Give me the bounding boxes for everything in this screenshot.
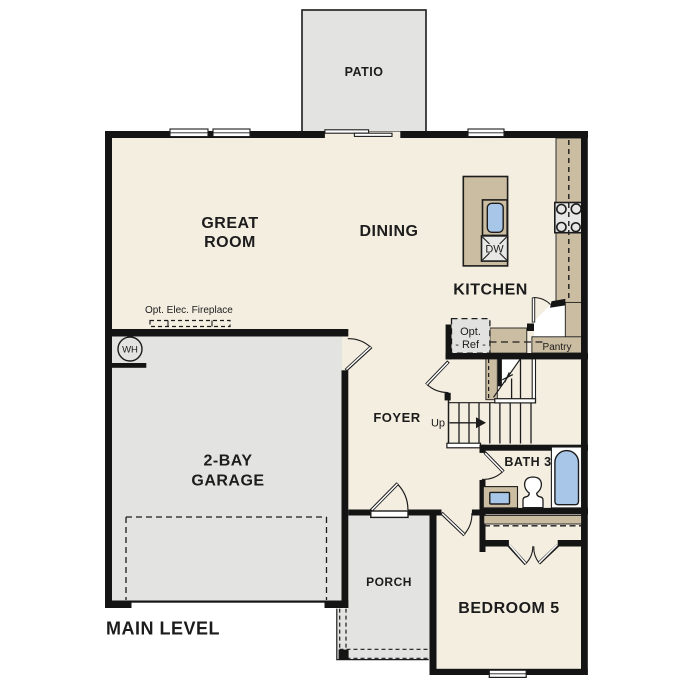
svg-text:Pantry: Pantry bbox=[543, 342, 572, 353]
svg-text:Opt. Elec. Fireplace: Opt. Elec. Fireplace bbox=[145, 305, 233, 316]
svg-text:BEDROOM 5: BEDROOM 5 bbox=[458, 600, 559, 617]
svg-text:DINING: DINING bbox=[360, 223, 419, 240]
svg-text:PORCH: PORCH bbox=[366, 575, 412, 589]
svg-text:ROOM: ROOM bbox=[204, 234, 256, 251]
svg-text:BATH 3: BATH 3 bbox=[504, 455, 551, 469]
svg-text:GREAT: GREAT bbox=[201, 215, 258, 232]
svg-text:WH: WH bbox=[122, 345, 138, 356]
svg-text:Up: Up bbox=[431, 418, 445, 430]
svg-text:- Ref -: - Ref - bbox=[455, 339, 486, 351]
svg-text:DW: DW bbox=[485, 244, 504, 256]
svg-text:2-BAY: 2-BAY bbox=[203, 453, 252, 470]
svg-text:MAIN LEVEL: MAIN LEVEL bbox=[106, 619, 220, 639]
svg-text:PATIO: PATIO bbox=[345, 65, 384, 79]
svg-text:GARAGE: GARAGE bbox=[191, 473, 264, 490]
svg-text:Opt.: Opt. bbox=[460, 326, 481, 338]
svg-text:FOYER: FOYER bbox=[373, 410, 420, 425]
svg-text:KITCHEN: KITCHEN bbox=[453, 282, 528, 299]
